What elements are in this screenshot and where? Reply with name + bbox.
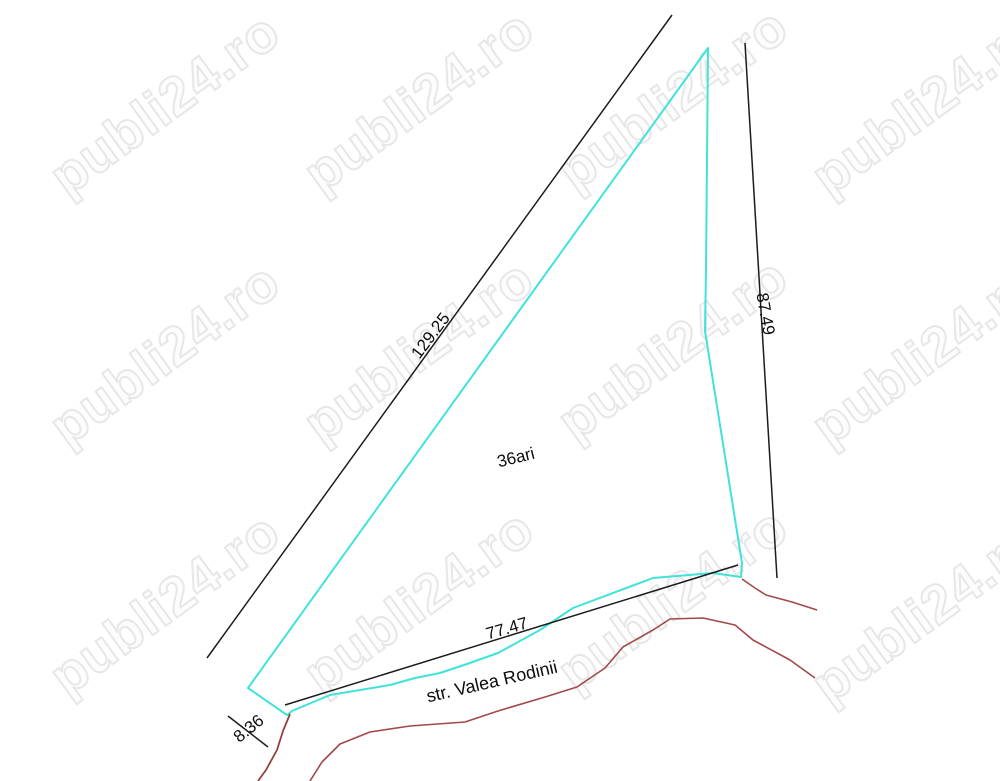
survey-drawing [0, 0, 1000, 781]
land-plot-sketch: publi24.ro publi24.ro publi24.ro publi24… [0, 0, 1000, 781]
road-edge-upper-right [742, 579, 817, 610]
road-edge-street [310, 618, 815, 781]
parcel-boundary [248, 48, 742, 715]
